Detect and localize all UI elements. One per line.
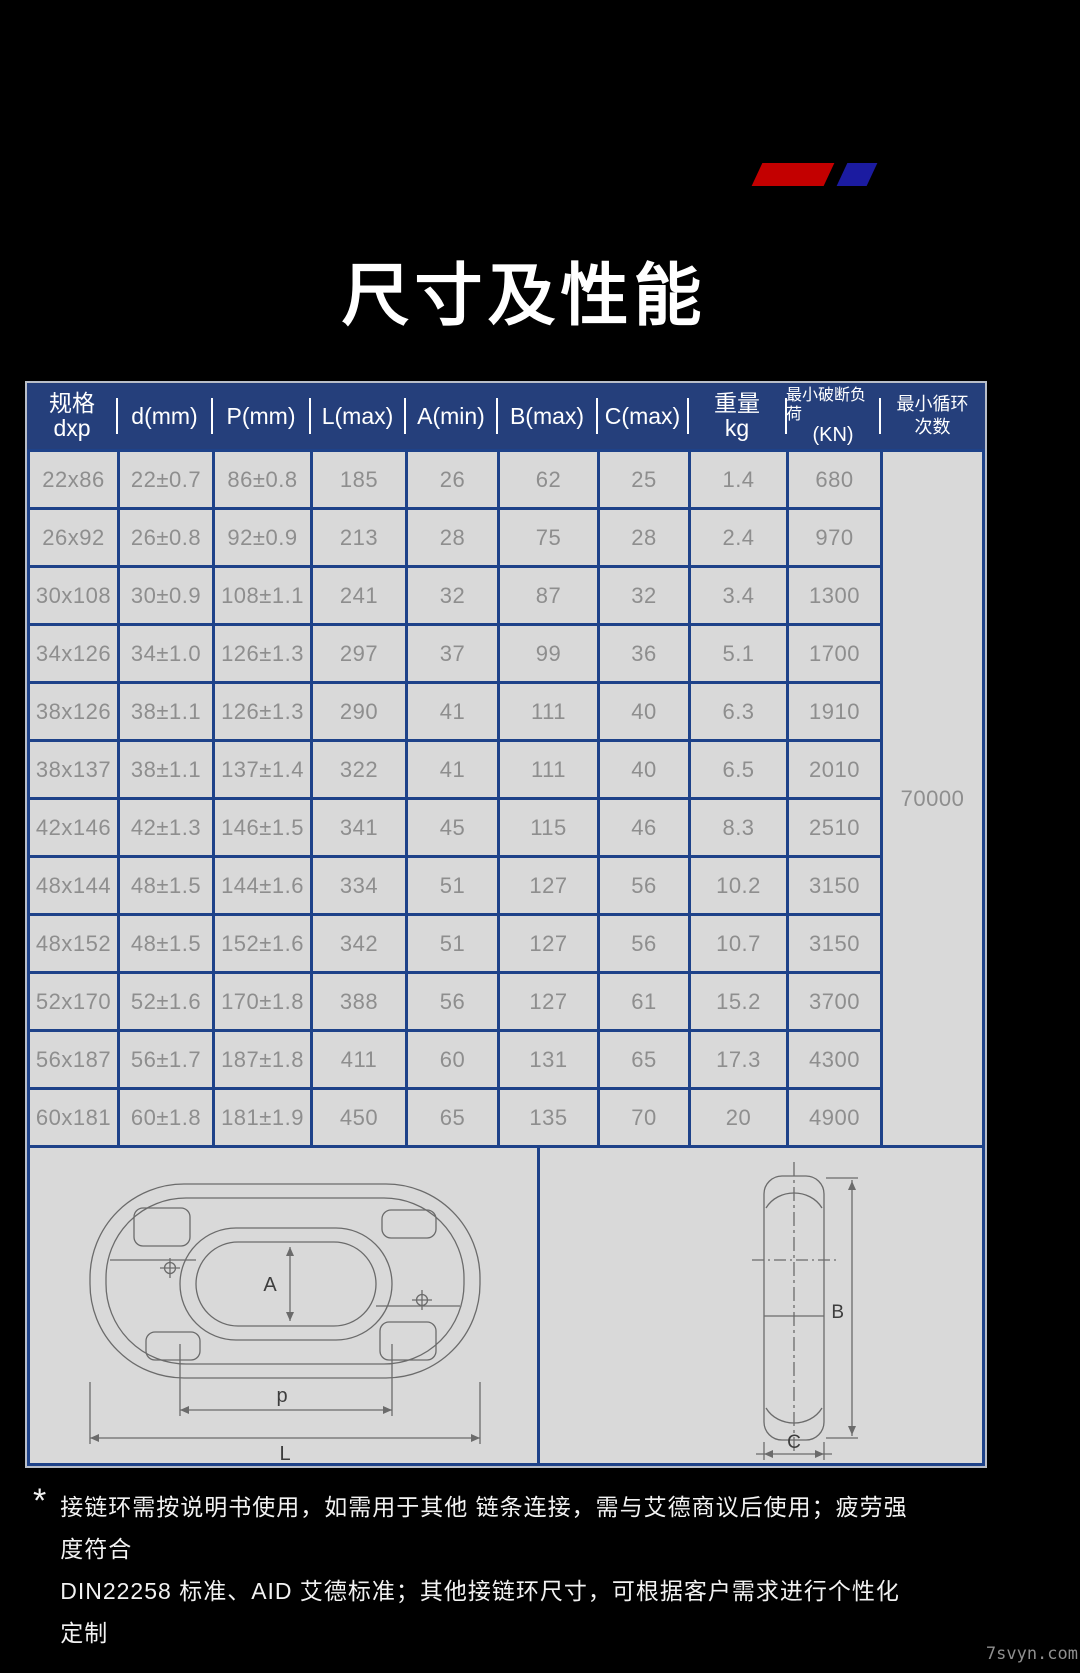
link-top-view-diagram: A p L: [30, 1148, 537, 1463]
table-cell: 25: [600, 452, 688, 507]
table-cell: 32: [408, 568, 497, 623]
table-cell: 8.3: [691, 800, 786, 855]
table-cell: 342: [313, 916, 405, 971]
dim-label-l: L: [279, 1443, 290, 1463]
table-cell: 48x144: [30, 858, 117, 913]
table-cell: 10.2: [691, 858, 786, 913]
table-cell: 108±1.1: [215, 568, 310, 623]
table-cell: 41: [408, 742, 497, 797]
table-cell: 60±1.8: [120, 1090, 212, 1145]
table-cell: 10.7: [691, 916, 786, 971]
table-cell: 1300: [789, 568, 880, 623]
table-cell: 127: [500, 916, 597, 971]
spec-table-body: 70000 22x8622±0.786±0.81852662251.468026…: [27, 449, 985, 1145]
table-cell: 26x92: [30, 510, 117, 565]
table-cell: 34x126: [30, 626, 117, 681]
dim-label-a: A: [263, 1274, 277, 1296]
table-cell: 48x152: [30, 916, 117, 971]
table-cell: 3150: [789, 858, 880, 913]
link-cross-section-diagram: B C: [540, 1148, 982, 1463]
table-cell: 111: [500, 742, 597, 797]
table-cell: 56: [408, 974, 497, 1029]
table-cell: 60: [408, 1032, 497, 1087]
col-header-weight: 重量kg: [688, 383, 786, 449]
table-cell: 2510: [789, 800, 880, 855]
table-cell: 4300: [789, 1032, 880, 1087]
table-cell: 70: [600, 1090, 688, 1145]
table-cell: 126±1.3: [215, 626, 310, 681]
table-cell: 38±1.1: [120, 742, 212, 797]
table-cell: 135: [500, 1090, 597, 1145]
watermark: 7svyn.com: [986, 1644, 1078, 1664]
dim-label-c: C: [787, 1432, 801, 1453]
table-cell: 22±0.7: [120, 452, 212, 507]
table-cell: 334: [313, 858, 405, 913]
table-cell: 40: [600, 684, 688, 739]
table-cell: 187±1.8: [215, 1032, 310, 1087]
table-cell: 6.3: [691, 684, 786, 739]
table-cell: 30x108: [30, 568, 117, 623]
table-cell: 290: [313, 684, 405, 739]
blue-accent-bar: [837, 163, 878, 186]
col-header-cmax: C(max): [597, 383, 688, 449]
col-header-spec: 规格dxp: [27, 383, 117, 449]
spec-table-header-row: 规格dxp d(mm) P(mm) L(max) A(min) B(max) C…: [27, 383, 985, 449]
table-cell: 52±1.6: [120, 974, 212, 1029]
table-cell: 28: [408, 510, 497, 565]
table-cell: 36: [600, 626, 688, 681]
table-cell: 48±1.5: [120, 916, 212, 971]
link-cross-section-panel: B C: [540, 1148, 982, 1463]
table-cell: 99: [500, 626, 597, 681]
table-cell: 181±1.9: [215, 1090, 310, 1145]
table-cell: 137±1.4: [215, 742, 310, 797]
table-cell: 1.4: [691, 452, 786, 507]
dim-label-b: B: [831, 1302, 844, 1323]
table-cell: 127: [500, 858, 597, 913]
dimension-drawings: A p L: [27, 1145, 985, 1466]
table-cell: 213: [313, 510, 405, 565]
dim-label-p: p: [276, 1385, 287, 1407]
table-cell: 56: [600, 858, 688, 913]
table-cell: 3150: [789, 916, 880, 971]
table-cell: 111: [500, 684, 597, 739]
table-cell: 2010: [789, 742, 880, 797]
table-cell: 60x181: [30, 1090, 117, 1145]
table-cell: 22x86: [30, 452, 117, 507]
table-cell: 241: [313, 568, 405, 623]
table-cell: 87: [500, 568, 597, 623]
table-cell: 38x137: [30, 742, 117, 797]
table-cell: 56x187: [30, 1032, 117, 1087]
table-cell: 28: [600, 510, 688, 565]
col-header-cycle-count: 最小循环次数: [880, 383, 985, 449]
footnote: * 接链环需按说明书使用，如需用于其他 链条连接，需与艾德商议后使用；疲劳强 度…: [33, 1486, 913, 1654]
table-cell: 3.4: [691, 568, 786, 623]
table-cell: 388: [313, 974, 405, 1029]
table-cell: 4900: [789, 1090, 880, 1145]
table-cell: 17.3: [691, 1032, 786, 1087]
page-title: 尺寸及性能: [0, 240, 1064, 339]
table-cell: 38±1.1: [120, 684, 212, 739]
table-cell: 52x170: [30, 974, 117, 1029]
table-cell: 32: [600, 568, 688, 623]
table-cell: 92±0.9: [215, 510, 310, 565]
table-cell: 51: [408, 858, 497, 913]
table-cell: 127: [500, 974, 597, 1029]
link-top-view-panel: A p L: [30, 1148, 537, 1463]
table-cell: 40: [600, 742, 688, 797]
cycle-count-cell: 70000: [883, 452, 982, 1145]
table-cell: 3700: [789, 974, 880, 1029]
table-cell: 38x126: [30, 684, 117, 739]
table-cell: 34±1.0: [120, 626, 212, 681]
footnote-line-1: 接链环需按说明书使用，如需用于其他 链条连接，需与艾德商议后使用；疲劳强 度符合: [60, 1486, 913, 1570]
table-cell: 297: [313, 626, 405, 681]
table-cell: 970: [789, 510, 880, 565]
table-cell: 65: [600, 1032, 688, 1087]
table-cell: 6.5: [691, 742, 786, 797]
table-cell: 75: [500, 510, 597, 565]
table-cell: 322: [313, 742, 405, 797]
table-cell: 170±1.8: [215, 974, 310, 1029]
table-cell: 1910: [789, 684, 880, 739]
table-cell: 37: [408, 626, 497, 681]
footnote-asterisk: *: [33, 1486, 46, 1654]
table-cell: 152±1.6: [215, 916, 310, 971]
table-cell: 20: [691, 1090, 786, 1145]
table-cell: 5.1: [691, 626, 786, 681]
col-header-d: d(mm): [117, 383, 212, 449]
table-cell: 450: [313, 1090, 405, 1145]
table-cell: 46: [600, 800, 688, 855]
table-cell: 680: [789, 452, 880, 507]
table-cell: 48±1.5: [120, 858, 212, 913]
table-cell: 42x146: [30, 800, 117, 855]
table-cell: 56: [600, 916, 688, 971]
table-cell: 41: [408, 684, 497, 739]
table-cell: 30±0.9: [120, 568, 212, 623]
table-cell: 61: [600, 974, 688, 1029]
table-cell: 86±0.8: [215, 452, 310, 507]
table-cell: 185: [313, 452, 405, 507]
table-cell: 45: [408, 800, 497, 855]
col-header-bmax: B(max): [497, 383, 597, 449]
table-cell: 411: [313, 1032, 405, 1087]
table-cell: 56±1.7: [120, 1032, 212, 1087]
table-cell: 126±1.3: [215, 684, 310, 739]
table-cell: 65: [408, 1090, 497, 1145]
red-accent-bar: [752, 163, 835, 186]
col-header-amin: A(min): [405, 383, 497, 449]
table-cell: 131: [500, 1032, 597, 1087]
table-cell: 146±1.5: [215, 800, 310, 855]
table-cell: 51: [408, 916, 497, 971]
table-cell: 15.2: [691, 974, 786, 1029]
table-cell: 341: [313, 800, 405, 855]
table-cell: 2.4: [691, 510, 786, 565]
spec-table: 规格dxp d(mm) P(mm) L(max) A(min) B(max) C…: [25, 381, 987, 1468]
footnote-line-2: DIN22258 标准、AID 艾德标准；其他接链环尺寸，可根据客户需求进行个性…: [60, 1570, 913, 1654]
col-header-lmax: L(max): [310, 383, 405, 449]
table-cell: 1700: [789, 626, 880, 681]
table-cell: 26±0.8: [120, 510, 212, 565]
table-cell: 26: [408, 452, 497, 507]
table-cell: 115: [500, 800, 597, 855]
col-header-p: P(mm): [212, 383, 310, 449]
table-cell: 62: [500, 452, 597, 507]
table-cell: 144±1.6: [215, 858, 310, 913]
col-header-break-load: 最小破断负荷(KN): [786, 383, 880, 449]
table-cell: 42±1.3: [120, 800, 212, 855]
